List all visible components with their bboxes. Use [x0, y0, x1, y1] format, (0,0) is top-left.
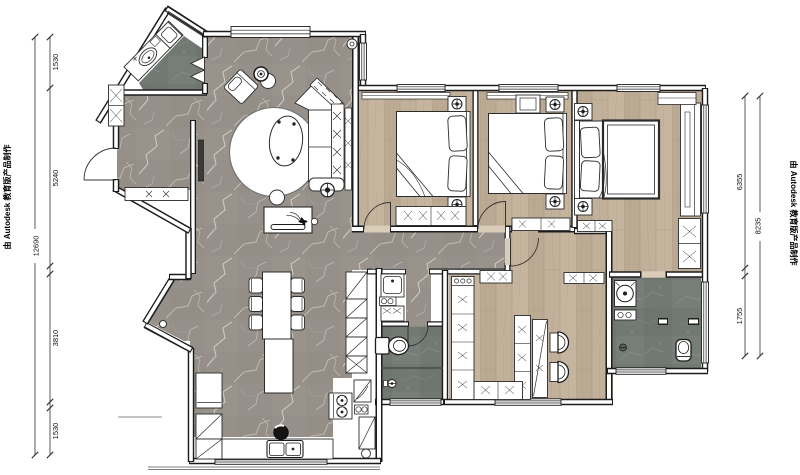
svg-text:1755: 1755 — [735, 308, 744, 325]
svg-text:3810: 3810 — [51, 330, 60, 347]
svg-text:由 Autodesk 教育版产品制作: 由 Autodesk 教育版产品制作 — [2, 145, 12, 250]
svg-text:12690: 12690 — [32, 236, 41, 257]
svg-text:6355: 6355 — [735, 174, 744, 191]
svg-text:8235: 8235 — [754, 218, 763, 235]
svg-text:1530: 1530 — [51, 54, 60, 71]
svg-text:5240: 5240 — [51, 170, 60, 187]
svg-text:1530: 1530 — [51, 423, 60, 440]
svg-text:由 Autodesk 教育版产品制作: 由 Autodesk 教育版产品制作 — [789, 161, 799, 266]
